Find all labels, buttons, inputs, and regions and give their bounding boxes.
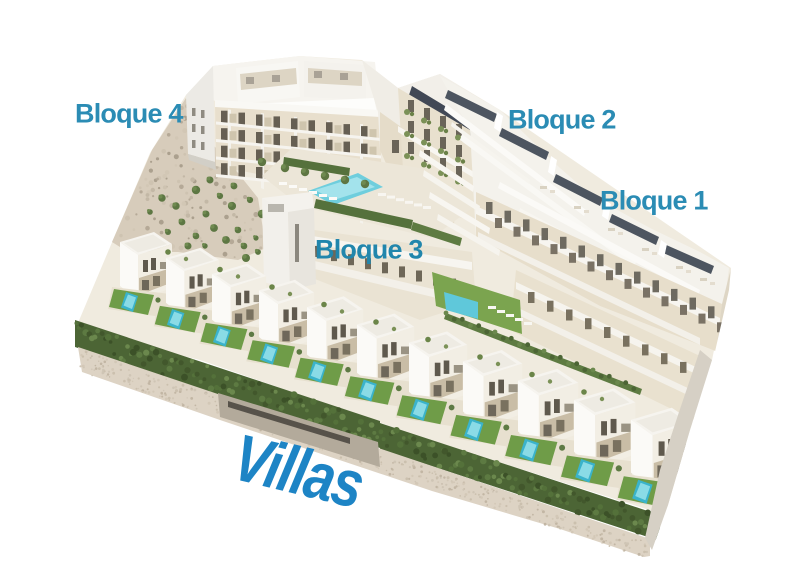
svg-text:Bloque 4: Bloque 4 [75,99,183,129]
svg-text:Bloque 2: Bloque 2 [508,105,616,135]
svg-text:Bloque 1: Bloque 1 [600,186,708,216]
svg-text:Bloque 3: Bloque 3 [315,235,423,265]
